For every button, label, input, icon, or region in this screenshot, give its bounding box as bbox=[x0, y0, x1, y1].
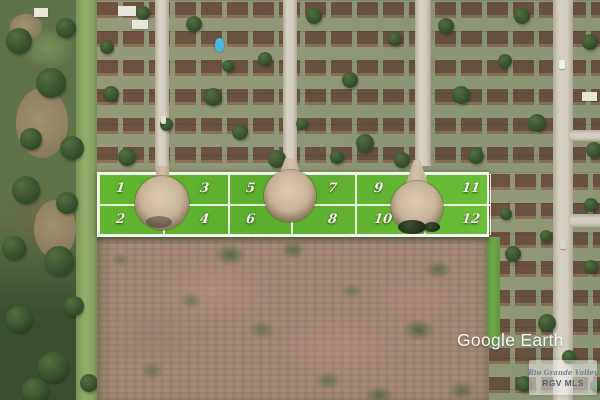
car bbox=[559, 60, 565, 69]
lot-9-number: 9 bbox=[374, 181, 385, 196]
google-earth-watermark: Google Earth bbox=[457, 330, 564, 351]
grass-strip bbox=[487, 237, 500, 345]
mls-logo: Rio Grande Valley RGV MLS bbox=[529, 360, 597, 395]
tree bbox=[505, 246, 521, 262]
tree bbox=[6, 306, 32, 332]
tree bbox=[500, 208, 512, 220]
tree bbox=[118, 148, 136, 166]
street bbox=[570, 130, 600, 141]
swimming-pool bbox=[215, 38, 224, 52]
tree bbox=[342, 72, 358, 88]
aerial-lot-map-photo: 1 3 5 7 9 11 2 4 6 8 10 12 Google Earth … bbox=[0, 0, 600, 400]
lot-11-number: 11 bbox=[461, 181, 481, 196]
tree bbox=[204, 88, 222, 106]
tree bbox=[44, 246, 74, 276]
tree bbox=[186, 16, 202, 32]
tree bbox=[38, 352, 68, 382]
tree bbox=[356, 134, 374, 152]
tree bbox=[394, 152, 410, 168]
car bbox=[161, 116, 166, 124]
tree bbox=[540, 230, 552, 242]
tree bbox=[60, 136, 84, 160]
tree bbox=[36, 68, 66, 98]
tree bbox=[330, 150, 344, 164]
street bbox=[283, 0, 297, 164]
bush bbox=[398, 220, 426, 234]
tree bbox=[6, 28, 32, 54]
lot-2-number: 2 bbox=[116, 212, 127, 227]
lot-6-number: 6 bbox=[245, 212, 256, 227]
tree bbox=[468, 148, 484, 164]
building-roof bbox=[582, 92, 597, 101]
street bbox=[155, 0, 169, 170]
dirt-shadow bbox=[146, 216, 172, 228]
tree bbox=[222, 60, 234, 72]
tree bbox=[584, 198, 598, 212]
street bbox=[415, 0, 431, 166]
tree bbox=[582, 34, 598, 50]
lot-12-number: 12 bbox=[461, 212, 481, 227]
street bbox=[570, 214, 600, 227]
tree bbox=[388, 32, 402, 46]
lot-10-number: 10 bbox=[374, 212, 394, 227]
lot-1-number: 1 bbox=[116, 181, 127, 196]
tree bbox=[80, 374, 98, 392]
tree bbox=[306, 8, 322, 24]
lot-7-number: 7 bbox=[327, 181, 338, 196]
tree bbox=[528, 114, 546, 132]
grass-strip bbox=[76, 0, 98, 400]
tree bbox=[100, 40, 114, 54]
vacant-field bbox=[97, 237, 489, 400]
tree bbox=[586, 142, 600, 158]
tree bbox=[2, 236, 26, 260]
mls-logo-text: RGV MLS bbox=[542, 378, 584, 388]
tree bbox=[103, 86, 119, 102]
lot-8-number: 8 bbox=[327, 212, 338, 227]
tree bbox=[232, 124, 248, 140]
mls-logo-script-text: Rio Grande Valley bbox=[528, 368, 598, 377]
tree bbox=[56, 18, 76, 38]
tree bbox=[56, 192, 78, 214]
tree bbox=[22, 378, 48, 400]
tree bbox=[584, 260, 598, 274]
building-roof bbox=[132, 20, 148, 29]
lot-3-number: 3 bbox=[199, 181, 210, 196]
car bbox=[560, 240, 566, 249]
building-roof bbox=[118, 6, 136, 16]
tree bbox=[64, 296, 84, 316]
tree bbox=[438, 18, 454, 34]
tree bbox=[258, 52, 272, 66]
bush bbox=[424, 222, 440, 232]
tree bbox=[136, 6, 150, 20]
tree bbox=[12, 176, 40, 204]
tree bbox=[20, 128, 42, 150]
tree bbox=[296, 118, 308, 130]
building-roof bbox=[34, 8, 48, 17]
lot-4-number: 4 bbox=[199, 212, 210, 227]
culdesac-circle bbox=[264, 170, 316, 222]
tree bbox=[498, 54, 512, 68]
lot-5-number: 5 bbox=[245, 181, 256, 196]
tree bbox=[452, 86, 470, 104]
tree bbox=[514, 8, 530, 24]
